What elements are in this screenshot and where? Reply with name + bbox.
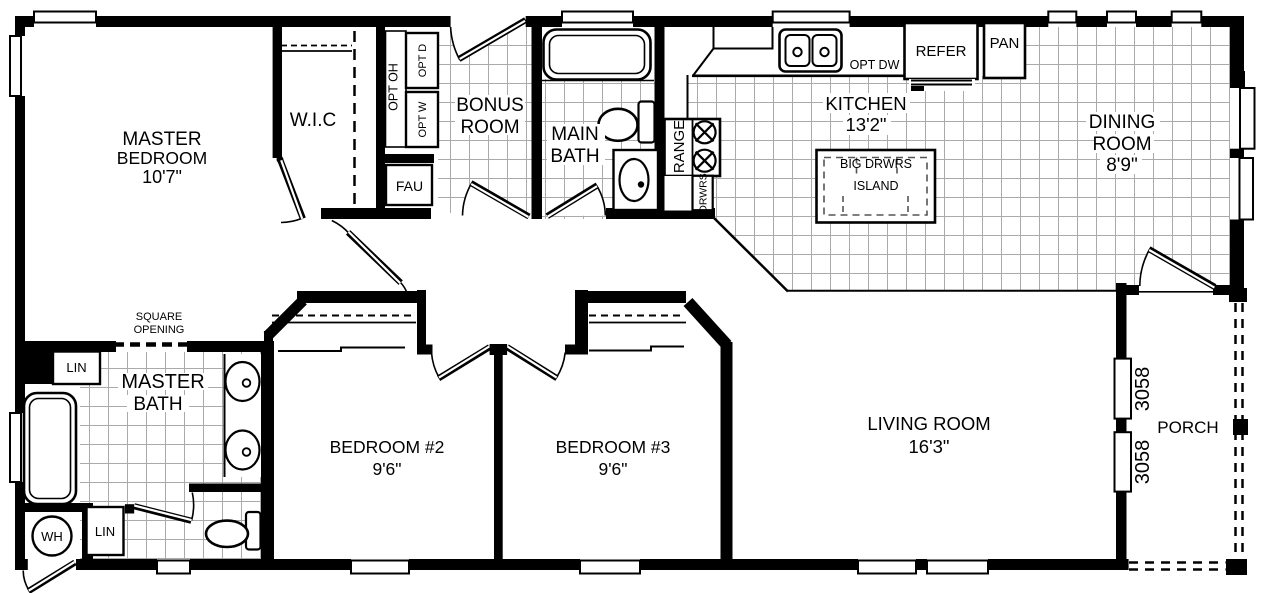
svg-text:16'3": 16'3": [909, 436, 950, 457]
svg-text:10'7": 10'7": [142, 167, 182, 187]
svg-text:BATH: BATH: [133, 394, 182, 415]
svg-text:3058: 3058: [1132, 440, 1154, 485]
svg-text:BEDROOM #2: BEDROOM #2: [330, 437, 445, 457]
svg-text:OPT W: OPT W: [417, 101, 429, 137]
svg-text:8'9": 8'9": [1106, 155, 1138, 176]
svg-text:BEDROOM: BEDROOM: [117, 148, 207, 168]
svg-text:ISLAND: ISLAND: [853, 179, 898, 193]
svg-text:9'6": 9'6": [372, 459, 401, 479]
svg-text:OPT OH: OPT OH: [387, 63, 401, 111]
svg-text:LIN: LIN: [66, 360, 86, 375]
svg-text:ROOM: ROOM: [1092, 134, 1151, 155]
svg-text:OPENING: OPENING: [134, 324, 185, 336]
svg-text:9'6": 9'6": [598, 459, 627, 479]
svg-text:OPT D: OPT D: [417, 44, 429, 77]
svg-text:LIN: LIN: [95, 524, 115, 539]
svg-text:3058: 3058: [1132, 367, 1154, 412]
svg-text:RANGE: RANGE: [671, 120, 688, 173]
svg-text:LIVING ROOM: LIVING ROOM: [867, 413, 990, 434]
svg-text:W.I.C: W.I.C: [290, 110, 336, 131]
svg-text:PORCH: PORCH: [1157, 418, 1218, 437]
svg-text:MASTER: MASTER: [121, 371, 204, 393]
svg-text:KITCHEN: KITCHEN: [825, 93, 906, 114]
svg-text:BATH: BATH: [550, 146, 599, 167]
svg-text:BEDROOM #3: BEDROOM #3: [556, 437, 671, 457]
svg-text:REFER: REFER: [916, 43, 967, 60]
svg-text:OPT DW: OPT DW: [850, 58, 900, 72]
svg-text:BIG DRWRS: BIG DRWRS: [840, 157, 912, 171]
svg-text:WH: WH: [41, 529, 63, 544]
svg-text:FAU: FAU: [396, 178, 423, 194]
svg-text:SQUARE: SQUARE: [136, 311, 182, 323]
svg-text:MASTER: MASTER: [122, 129, 201, 150]
svg-text:DRWRS: DRWRS: [698, 173, 710, 212]
svg-text:ROOM: ROOM: [460, 117, 519, 138]
svg-text:BONUS: BONUS: [456, 95, 524, 116]
svg-text:PAN: PAN: [990, 35, 1020, 52]
svg-text:13'2": 13'2": [846, 114, 887, 135]
svg-text:MAIN: MAIN: [551, 124, 599, 145]
svg-text:DINING: DINING: [1089, 112, 1156, 133]
